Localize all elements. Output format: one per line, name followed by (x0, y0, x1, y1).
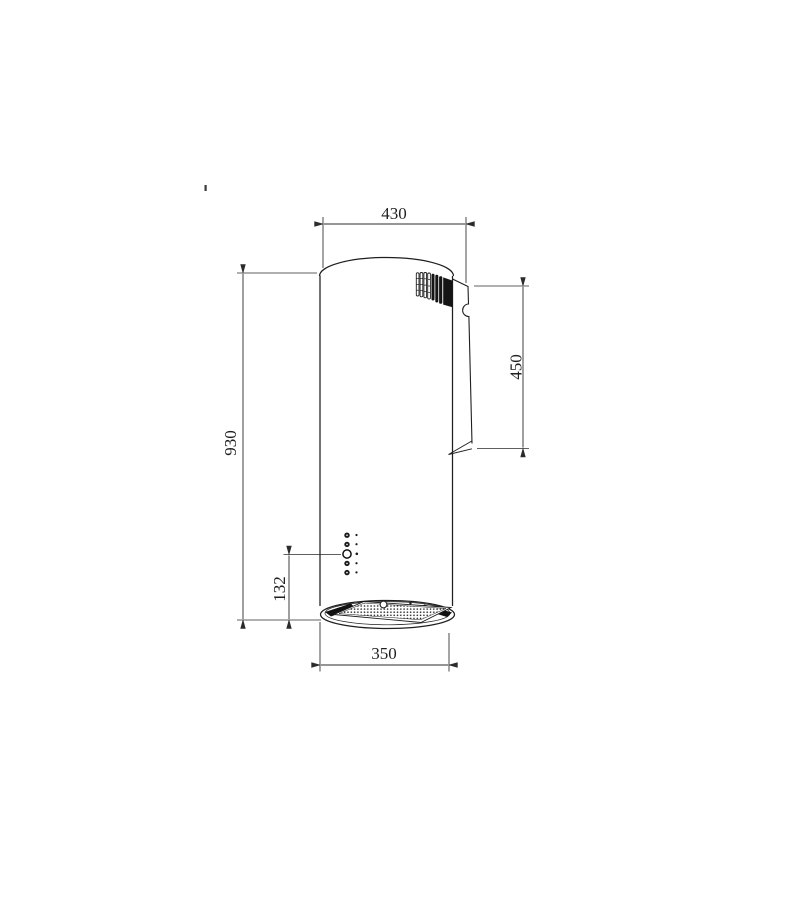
vent-slot (435, 275, 438, 303)
button-row-center (343, 550, 358, 558)
dimension-label-430: 430 (381, 204, 407, 223)
dimension-label-350: 350 (371, 644, 397, 663)
dimension-chimney-height: 450 (474, 286, 529, 449)
dimension-label-930: 930 (221, 430, 240, 456)
filter-knob (380, 601, 387, 608)
bracket-top-and-right-edge (453, 279, 473, 444)
button-row (344, 533, 357, 538)
dimension-top-width: 430 (323, 204, 466, 283)
dimension-body-diameter: 350 (320, 622, 449, 672)
vent-slot-dark-group (432, 274, 453, 307)
dimension-label-132: 132 (270, 576, 289, 602)
button-row (344, 561, 357, 566)
filter-dot (409, 602, 411, 604)
technical-drawing-canvas: 430 930 450 132 350 (0, 0, 800, 900)
bottom-grille (321, 601, 455, 629)
dimension-overall-height: 930 (221, 273, 321, 620)
cylinder-top-arc (320, 258, 454, 277)
vent-slot (439, 276, 442, 304)
control-buttons (343, 533, 358, 576)
vent-slot (432, 274, 435, 301)
stray-tick-mark (205, 185, 207, 191)
hood-body (320, 258, 454, 607)
dimension-label-450: 450 (507, 354, 526, 380)
button-row (344, 570, 357, 575)
cooker-hood-drawing: 430 930 450 132 350 (0, 0, 800, 900)
vent-slot-solid-wedge (443, 277, 452, 307)
vent-slots (416, 273, 452, 308)
button-row (344, 542, 357, 547)
